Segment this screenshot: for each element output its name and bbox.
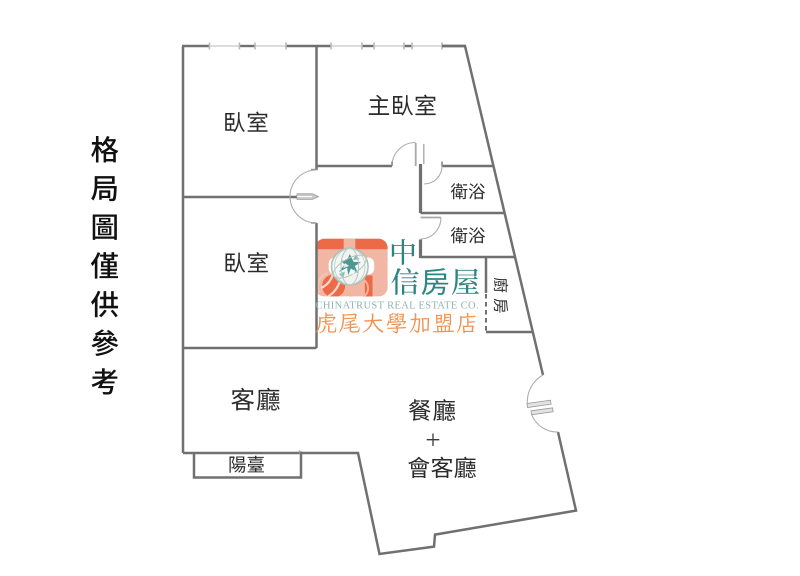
svg-text:CHINATRUST REAL ESTATE CO.: CHINATRUST REAL ESTATE CO.	[316, 300, 479, 311]
